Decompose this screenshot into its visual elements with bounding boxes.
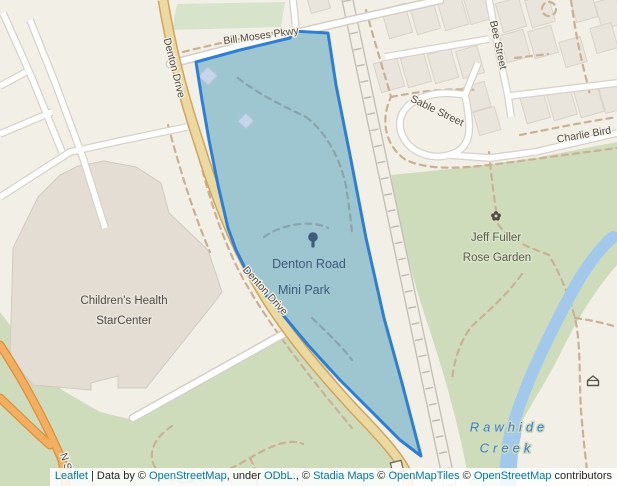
openmaptiles-link[interactable]: OpenMapTiles: [388, 470, 459, 482]
map-canvas[interactable]: Bill Moses Pkwy Denton Drive Denton Driv…: [0, 0, 617, 486]
rose-garden-label-line2: Rose Garden: [463, 252, 531, 264]
attribution-text: contributors: [551, 470, 612, 482]
attribution-text: ©: [374, 470, 388, 482]
attribution-text: , ©: [296, 470, 313, 482]
attribution-text: | Data by ©: [88, 470, 149, 482]
starcenter-label-line1: Children's Health: [80, 295, 167, 307]
map-attribution: Leaflet | Data by © OpenStreetMap, under…: [50, 468, 617, 486]
leaflet-map[interactable]: Bill Moses Pkwy Denton Drive Denton Driv…: [0, 0, 617, 486]
creek-label-line2: Creek: [480, 441, 535, 456]
openstreetmap-link[interactable]: OpenStreetMap: [149, 470, 227, 482]
rose-garden-label-line1: Jeff Fuller: [471, 232, 521, 244]
openstreetmap-link-2[interactable]: OpenStreetMap: [474, 470, 552, 482]
creek-label-line1: Rawhide: [470, 420, 549, 435]
park-name-line2: Mini Park: [278, 283, 331, 297]
starcenter-label-line2: StarCenter: [96, 315, 152, 327]
odbl-link[interactable]: ODbL.: [264, 470, 296, 482]
stadia-maps-link[interactable]: Stadia Maps: [313, 470, 374, 482]
attribution-text: , under: [227, 470, 264, 482]
attribution-text: ©: [460, 470, 474, 482]
sports-field: [172, 2, 285, 30]
leaflet-link[interactable]: Leaflet: [55, 470, 88, 482]
park-name-line1: Denton Road: [272, 257, 346, 271]
